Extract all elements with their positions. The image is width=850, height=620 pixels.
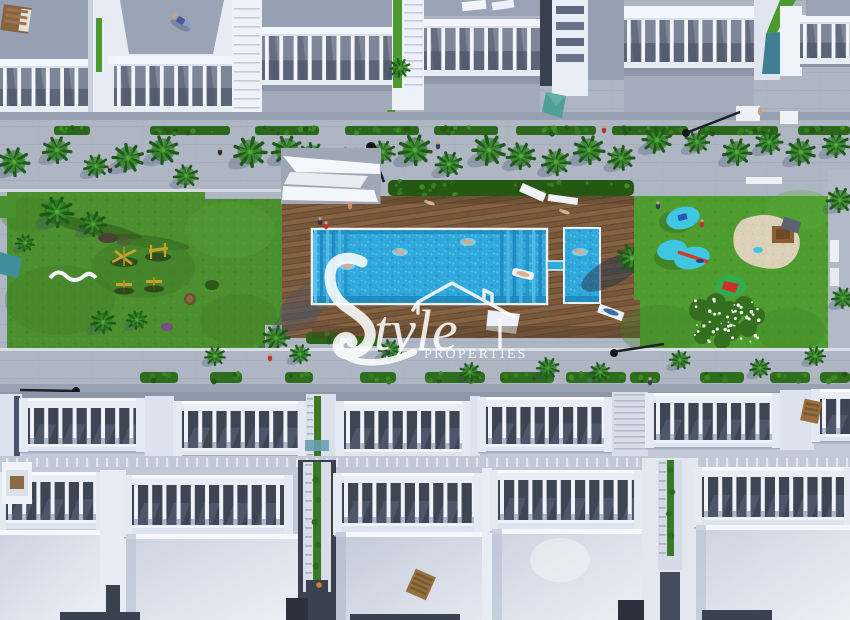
svg-text:PROPERTIES: PROPERTIES — [424, 347, 528, 362]
